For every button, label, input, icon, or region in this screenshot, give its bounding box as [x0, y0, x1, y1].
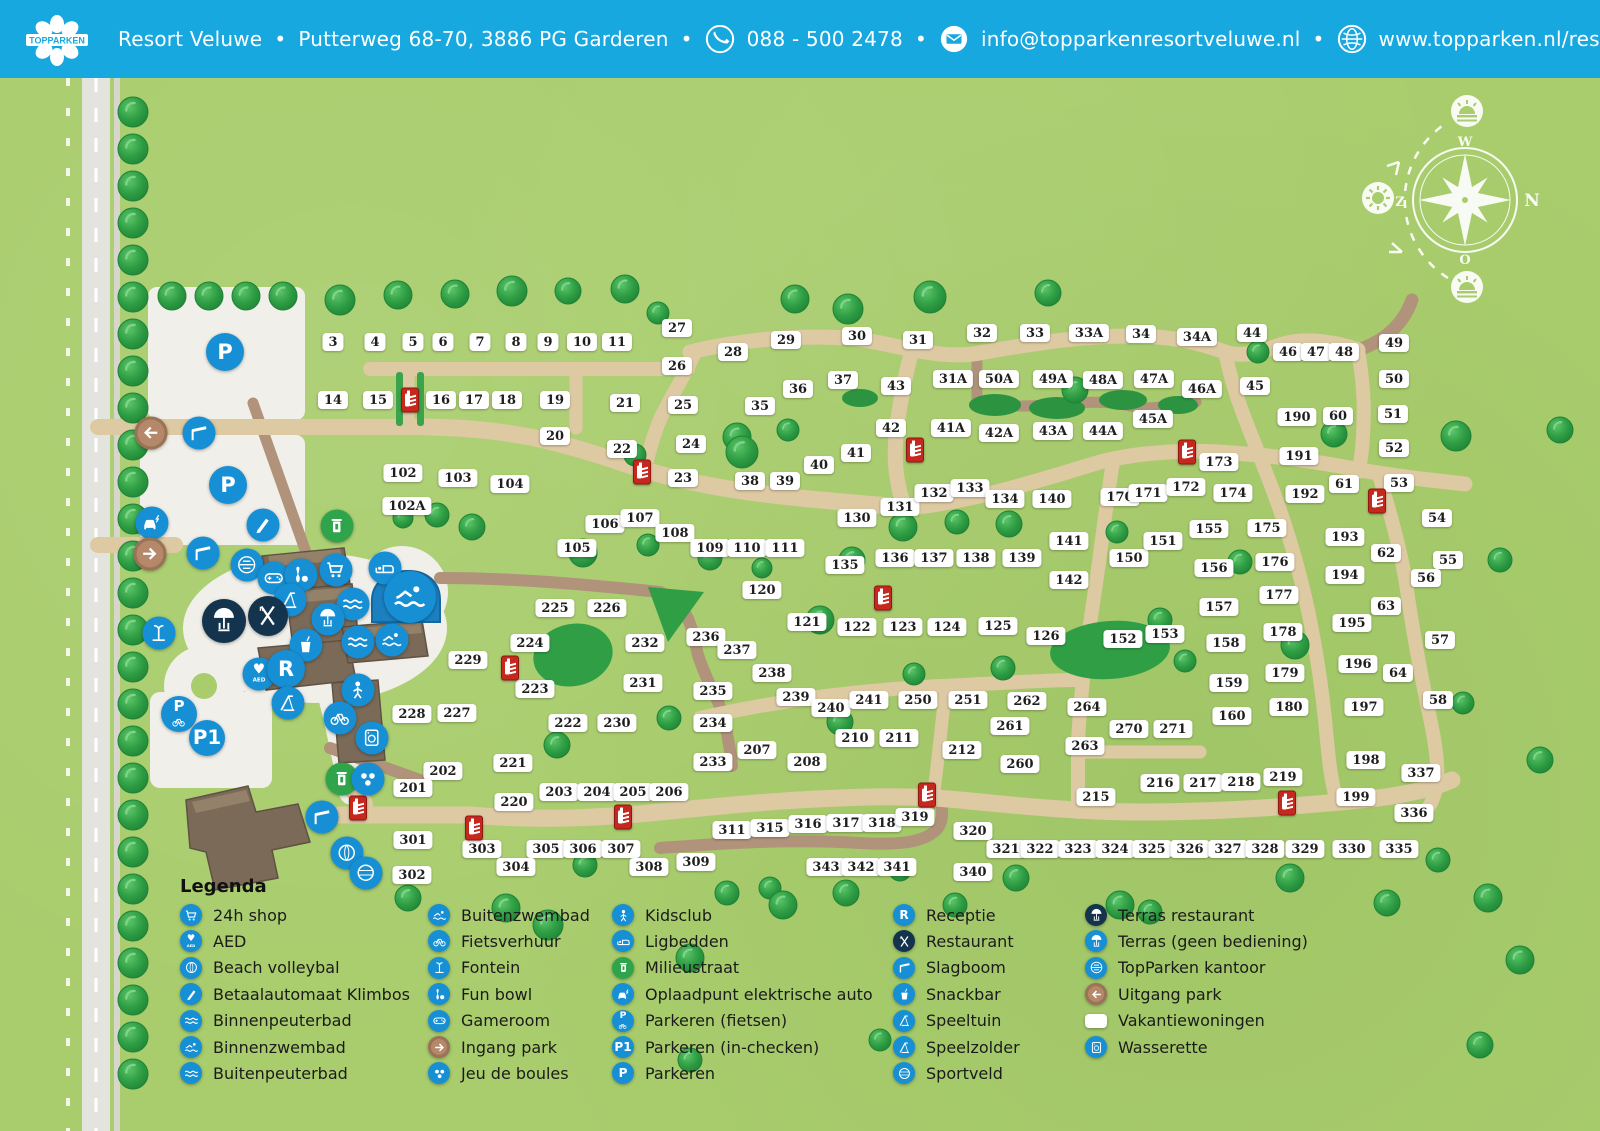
plot-150: 150 — [1109, 549, 1148, 567]
plot-109: 109 — [690, 539, 729, 557]
plot-311: 311 — [712, 821, 751, 839]
sun-icon — [1362, 182, 1394, 214]
plot-306: 306 — [563, 840, 602, 858]
plot-240: 240 — [811, 699, 850, 717]
plot-120: 120 — [742, 581, 781, 599]
fire-extinguisher-icon — [633, 460, 651, 485]
legend-item-wasserette: Wasserette — [1085, 1035, 1208, 1059]
legend-item-ligbedden: Ligbedden — [612, 929, 729, 953]
plot-33A: 33A — [1069, 324, 1109, 342]
plot-155: 155 — [1189, 520, 1228, 538]
legend-item-terras-geen-bediening: Terras (geen bediening) — [1085, 929, 1308, 953]
snackbar-icon — [893, 983, 915, 1005]
aed-icon: ♥AED — [180, 930, 202, 952]
plot-177: 177 — [1259, 586, 1298, 604]
terras-restaurant-icon — [1085, 904, 1107, 926]
plot-136: 136 — [875, 549, 914, 567]
binnenpeuterbad-icon — [180, 1010, 202, 1032]
legend-label: Fontein — [461, 958, 520, 977]
betaalautomaat-icon — [180, 983, 202, 1005]
legend-label: Fietsverhuur — [461, 932, 561, 951]
plot-11: 11 — [602, 333, 632, 351]
plot-121: 121 — [787, 613, 826, 631]
plot-62: 62 — [1371, 544, 1401, 562]
gameroom-icon — [428, 1010, 450, 1032]
plot-325: 325 — [1132, 840, 1171, 858]
plot-20: 20 — [540, 427, 570, 445]
plot-211: 211 — [879, 729, 918, 747]
plot-7: 7 — [469, 333, 490, 351]
legend-label: Oplaadpunt elektrische auto — [645, 985, 873, 1004]
plot-133: 133 — [950, 479, 989, 497]
uitgang-park-icon — [135, 417, 168, 450]
plot-326: 326 — [1170, 840, 1209, 858]
compass-label-right: N — [1524, 191, 1540, 211]
plot-195: 195 — [1332, 614, 1371, 632]
plot-201: 201 — [393, 779, 432, 797]
plot-327: 327 — [1208, 840, 1247, 858]
plot-227: 227 — [437, 704, 476, 722]
plot-271: 271 — [1153, 720, 1192, 738]
oplaadpunt-icon — [136, 507, 169, 540]
plot-46A: 46A — [1182, 380, 1222, 398]
legend-item-betaalautomaat: Betaalautomaat Klimbos — [180, 982, 410, 1006]
shop24-icon — [180, 904, 202, 926]
plot-35: 35 — [745, 397, 775, 415]
plot-158: 158 — [1206, 634, 1245, 652]
legend-label: Binnenzwembad — [213, 1038, 346, 1057]
speelzolder-icon — [893, 1036, 915, 1058]
park-website[interactable]: www.topparken.nl/resort-veluwe — [1379, 27, 1600, 51]
plot-202: 202 — [423, 762, 462, 780]
plot-33: 33 — [1020, 324, 1050, 342]
plot-30: 30 — [842, 327, 872, 345]
parkeren-icon: P — [206, 333, 244, 371]
plot-23: 23 — [668, 469, 698, 487]
fontein-icon — [143, 617, 176, 650]
plot-343: 343 — [806, 858, 845, 876]
plot-337: 337 — [1401, 764, 1440, 782]
plot-44: 44 — [1237, 324, 1267, 342]
plot-34: 34 — [1126, 325, 1156, 343]
plot-179: 179 — [1265, 664, 1304, 682]
parkeren-icon: P — [612, 1062, 634, 1084]
legend-item-fun-bowl: Fun bowl — [428, 982, 532, 1006]
plot-215: 215 — [1076, 788, 1115, 806]
speeltuin-icon — [893, 1010, 915, 1032]
plot-50A: 50A — [979, 370, 1019, 388]
legend-item-sportveld: Sportveld — [893, 1061, 1003, 1085]
plot-104: 104 — [490, 475, 529, 493]
plot-218: 218 — [1221, 773, 1260, 791]
plot-130: 130 — [837, 509, 876, 527]
legend-item-receptie: RReceptie — [893, 903, 996, 927]
plot-125: 125 — [978, 617, 1017, 635]
legend-item-shop24: 24h shop — [180, 903, 287, 927]
fire-extinguisher-icon — [349, 796, 367, 821]
plot-180: 180 — [1269, 698, 1308, 716]
kidsclub-icon — [342, 674, 375, 707]
plot-234: 234 — [693, 714, 732, 732]
legend-label: Binnenpeuterbad — [213, 1011, 352, 1030]
legend-label: Restaurant — [926, 932, 1014, 951]
plot-316: 316 — [788, 815, 827, 833]
jeu-de-boules-icon — [352, 763, 385, 796]
plot-42: 42 — [876, 419, 906, 437]
plot-131: 131 — [880, 498, 919, 516]
legend-label: Kidsclub — [645, 906, 712, 925]
plot-305: 305 — [526, 840, 565, 858]
kidsclub-icon — [612, 904, 634, 926]
compass-label-top: W — [1457, 135, 1473, 150]
compass-rose: W N O Z — [1362, 95, 1540, 303]
plot-45: 45 — [1240, 377, 1270, 395]
ingang-park-icon — [428, 1036, 450, 1058]
legend-label: Milieustraat — [645, 958, 739, 977]
legend-label: Wasserette — [1118, 1038, 1208, 1057]
plot-43: 43 — [881, 377, 911, 395]
plot-340: 340 — [953, 863, 992, 881]
fire-extinguisher-icon — [614, 805, 632, 830]
slagboom-icon — [306, 801, 339, 834]
plot-102A: 102A — [382, 497, 431, 515]
plot-111: 111 — [765, 539, 804, 557]
legend-label: Receptie — [926, 906, 996, 925]
fire-extinguisher-icon — [874, 586, 892, 611]
betaalautomaat-icon — [247, 509, 280, 542]
plot-204: 204 — [577, 783, 616, 801]
phone-icon — [705, 24, 735, 54]
plot-49: 49 — [1379, 334, 1409, 352]
fire-extinguisher-icon — [401, 388, 419, 413]
legend-label: Terras restaurant — [1118, 906, 1254, 925]
plot-39: 39 — [770, 472, 800, 490]
plot-32: 32 — [967, 324, 997, 342]
fire-extinguisher-icon — [918, 783, 936, 808]
plot-153: 153 — [1145, 625, 1184, 643]
sunset-icon — [1451, 271, 1483, 303]
plot-250: 250 — [898, 691, 937, 709]
resort-map-page: W N O Z — [0, 0, 1600, 1131]
plot-135: 135 — [825, 556, 864, 574]
plot-103: 103 — [438, 469, 477, 487]
legend-item-gameroom: Gameroom — [428, 1009, 550, 1033]
sunrise-icon — [1451, 95, 1483, 127]
plot-197: 197 — [1344, 698, 1383, 716]
plot-225: 225 — [535, 599, 574, 617]
plot-196: 196 — [1338, 655, 1377, 673]
legend-label: Ingang park — [461, 1038, 557, 1057]
plot-309: 309 — [676, 853, 715, 871]
legend-label: Sportveld — [926, 1064, 1003, 1083]
plot-31: 31 — [903, 331, 933, 349]
fietsverhuur-icon — [428, 930, 450, 952]
plot-156: 156 — [1194, 559, 1233, 577]
plot-205: 205 — [613, 783, 652, 801]
park-address: Putterweg 68-70, 3886 PG Garderen — [298, 27, 668, 51]
sportveld-icon — [350, 857, 383, 890]
uitgang-park-icon — [1085, 983, 1107, 1005]
plot-270: 270 — [1109, 720, 1148, 738]
plot-301: 301 — [393, 831, 432, 849]
binnenzwembad-icon — [180, 1036, 202, 1058]
shop24-icon — [320, 554, 353, 587]
plot-138: 138 — [956, 549, 995, 567]
plot-31A: 31A — [933, 370, 973, 388]
jeu-de-boules-icon — [428, 1062, 450, 1084]
plot-159: 159 — [1209, 674, 1248, 692]
plot-251: 251 — [948, 691, 987, 709]
plot-55: 55 — [1433, 551, 1463, 569]
plot-176: 176 — [1255, 553, 1294, 571]
plot-193: 193 — [1325, 528, 1364, 546]
plot-322: 322 — [1020, 840, 1059, 858]
fun-bowl-icon — [428, 983, 450, 1005]
plot-21: 21 — [610, 394, 640, 412]
legend-label: Parkeren — [645, 1064, 715, 1083]
plot-194: 194 — [1325, 566, 1364, 584]
plot-320: 320 — [953, 822, 992, 840]
plot-6: 6 — [432, 333, 453, 351]
legend-item-restaurant: Restaurant — [893, 929, 1014, 953]
vakantiewoningen-icon — [1085, 1014, 1107, 1028]
restaurant-icon — [893, 930, 915, 952]
plot-19: 19 — [540, 391, 570, 409]
plot-40: 40 — [804, 456, 834, 474]
sportveld-icon — [893, 1062, 915, 1084]
plot-152: 152 — [1103, 630, 1142, 648]
plot-237: 237 — [717, 641, 756, 659]
speelzolder-icon — [272, 687, 305, 720]
plot-42A: 42A — [979, 424, 1019, 442]
buitenpeuterbad-icon — [342, 626, 375, 659]
legend-item-ingang-park: Ingang park — [428, 1035, 557, 1059]
legend-label: Fun bowl — [461, 985, 532, 1004]
plot-24: 24 — [676, 435, 706, 453]
logo-brand-text: TOPPARKEN — [29, 36, 85, 46]
plot-226: 226 — [587, 599, 626, 617]
legend-item-kidsclub: Kidsclub — [612, 903, 712, 927]
plot-45A: 45A — [1133, 410, 1173, 428]
plot-328: 328 — [1245, 840, 1284, 858]
plot-122: 122 — [837, 618, 876, 636]
plot-307: 307 — [601, 840, 640, 858]
header-bar: TOPPARKEN Resort Veluwe • Putterweg 68-7… — [0, 0, 1600, 78]
plot-3: 3 — [322, 333, 343, 351]
terras-geen-bediening-icon — [1085, 930, 1107, 952]
compass-label-bottom: O — [1459, 253, 1470, 268]
legend-label: Jeu de boules — [461, 1064, 569, 1083]
plot-5: 5 — [402, 333, 423, 351]
legend-label: AED — [213, 932, 246, 951]
plot-241: 241 — [849, 691, 888, 709]
legend-item-slagboom: Slagboom — [893, 956, 1006, 980]
slagboom-icon — [183, 417, 216, 450]
plot-198: 198 — [1346, 751, 1385, 769]
plot-262: 262 — [1007, 692, 1046, 710]
plot-173: 173 — [1199, 453, 1238, 471]
ligbedden-icon — [612, 930, 634, 952]
park-email[interactable]: info@topparkenresortveluwe.nl — [981, 27, 1301, 51]
plot-51: 51 — [1378, 405, 1408, 423]
plot-22: 22 — [607, 440, 637, 458]
plot-64: 64 — [1383, 664, 1413, 682]
plot-207: 207 — [737, 741, 776, 759]
legend-item-jeu-de-boules: Jeu de boules — [428, 1061, 569, 1085]
plot-222: 222 — [548, 714, 587, 732]
fire-extinguisher-icon — [465, 816, 483, 841]
legend-label: Parkeren (fietsen) — [645, 1011, 787, 1030]
plot-139: 139 — [1002, 549, 1041, 567]
buitenzwembad-icon — [428, 904, 450, 926]
plot-10: 10 — [567, 333, 597, 351]
plot-132: 132 — [914, 484, 953, 502]
milieustraat-icon — [612, 957, 634, 979]
plot-105: 105 — [557, 539, 596, 557]
mail-icon — [939, 24, 969, 54]
legend-item-milieustraat: Milieustraat — [612, 956, 739, 980]
plot-302: 302 — [392, 866, 431, 884]
plot-217: 217 — [1183, 774, 1222, 792]
receptie-icon: R — [267, 650, 305, 688]
plot-315: 315 — [750, 819, 789, 837]
legend-label: 24h shop — [213, 906, 287, 925]
fire-extinguisher-icon — [501, 656, 519, 681]
plot-264: 264 — [1067, 698, 1106, 716]
plot-304: 304 — [496, 858, 535, 876]
plot-107: 107 — [620, 509, 659, 527]
plot-106: 106 — [585, 515, 624, 533]
plot-212: 212 — [942, 741, 981, 759]
plot-124: 124 — [927, 618, 966, 636]
plot-192: 192 — [1285, 485, 1324, 503]
fontein-icon — [428, 957, 450, 979]
plot-63: 63 — [1371, 597, 1401, 615]
plot-28: 28 — [718, 343, 748, 361]
plot-172: 172 — [1166, 478, 1205, 496]
plot-123: 123 — [883, 618, 922, 636]
plot-323: 323 — [1058, 840, 1097, 858]
plot-228: 228 — [392, 705, 431, 723]
globe-icon — [1337, 24, 1367, 54]
legend-item-snackbar: Snackbar — [893, 982, 1001, 1006]
slagboom-icon — [187, 537, 220, 570]
parkeren-inchecken-icon: P1 — [189, 720, 225, 756]
legend-item-vakantiewoningen: Vakantiewoningen — [1085, 1009, 1265, 1033]
plot-171: 171 — [1128, 484, 1167, 502]
slagboom-icon — [893, 957, 915, 979]
legend-item-aed: ♥AEDAED — [180, 929, 246, 953]
ingang-park-icon — [134, 538, 167, 571]
legend-item-beach-volleybal: Beach volleybal — [180, 956, 340, 980]
plot-56: 56 — [1411, 569, 1441, 587]
legend-item-fietsverhuur: Fietsverhuur — [428, 929, 561, 953]
legend-label: Speeltuin — [926, 1011, 1001, 1030]
public-road — [68, 78, 120, 1131]
plot-175: 175 — [1247, 519, 1286, 537]
legend-label: Ligbedden — [645, 932, 729, 951]
plot-16: 16 — [426, 391, 456, 409]
legend-label: Parkeren (in-checken) — [645, 1038, 819, 1057]
plot-44A: 44A — [1083, 422, 1123, 440]
plot-46: 46 — [1273, 343, 1303, 361]
plot-342: 342 — [841, 858, 880, 876]
plot-223: 223 — [515, 680, 554, 698]
legend-label: Buitenzwembad — [461, 906, 590, 925]
legend-item-buitenzwembad: Buitenzwembad — [428, 903, 590, 927]
plot-102: 102 — [383, 464, 422, 482]
legend-label: Betaalautomaat Klimbos — [213, 985, 410, 1004]
wasserette-icon — [356, 722, 389, 755]
plot-303: 303 — [462, 840, 501, 858]
plot-330: 330 — [1332, 840, 1371, 858]
plot-9: 9 — [537, 333, 558, 351]
plot-110: 110 — [727, 539, 766, 557]
plot-37: 37 — [828, 371, 858, 389]
plot-15: 15 — [363, 391, 393, 409]
plot-203: 203 — [539, 783, 578, 801]
legend-item-parkeren-inchecken: P1Parkeren (in-checken) — [612, 1035, 819, 1059]
plot-239: 239 — [776, 688, 815, 706]
plot-61: 61 — [1329, 475, 1359, 493]
plot-53: 53 — [1384, 474, 1414, 492]
plot-178: 178 — [1263, 623, 1302, 641]
plot-216: 216 — [1140, 774, 1179, 792]
plot-49A: 49A — [1033, 370, 1073, 388]
receptie-icon: R — [893, 904, 915, 926]
plot-324: 324 — [1095, 840, 1134, 858]
plot-219: 219 — [1263, 768, 1302, 786]
fire-extinguisher-icon — [1278, 791, 1296, 816]
plot-27: 27 — [662, 319, 692, 337]
plot-335: 335 — [1379, 840, 1418, 858]
plot-151: 151 — [1143, 532, 1182, 550]
plot-260: 260 — [1000, 755, 1039, 773]
plot-140: 140 — [1032, 490, 1071, 508]
plot-137: 137 — [914, 549, 953, 567]
wasserette-icon — [1085, 1036, 1107, 1058]
plot-238: 238 — [752, 664, 791, 682]
plot-224: 224 — [510, 634, 549, 652]
legend-label: Buitenpeuterbad — [213, 1064, 348, 1083]
plot-14: 14 — [318, 391, 348, 409]
plot-48A: 48A — [1083, 371, 1123, 389]
oplaadpunt-icon — [612, 983, 634, 1005]
plot-8: 8 — [505, 333, 526, 351]
plot-191: 191 — [1279, 447, 1318, 465]
plot-210: 210 — [835, 729, 874, 747]
plot-41A: 41A — [931, 419, 971, 437]
plot-199: 199 — [1336, 788, 1375, 806]
terras-geen-bediening-icon — [312, 603, 345, 636]
plot-221: 221 — [493, 754, 532, 772]
plot-47: 47 — [1301, 343, 1331, 361]
plot-34A: 34A — [1177, 328, 1217, 346]
legend-label: Vakantiewoningen — [1118, 1011, 1265, 1030]
plot-317: 317 — [826, 814, 865, 832]
restaurant-icon — [248, 596, 288, 636]
plot-141: 141 — [1049, 532, 1088, 550]
plot-336: 336 — [1394, 804, 1433, 822]
legend-label: Snackbar — [926, 985, 1001, 1004]
plot-41: 41 — [841, 444, 871, 462]
plot-50: 50 — [1379, 370, 1409, 388]
legend-item-uitgang-park: Uitgang park — [1085, 982, 1222, 1006]
plot-319: 319 — [895, 808, 934, 826]
plot-108: 108 — [655, 524, 694, 542]
legend-label: TopParken kantoor — [1118, 958, 1265, 977]
fietsverhuur-icon — [324, 702, 357, 735]
